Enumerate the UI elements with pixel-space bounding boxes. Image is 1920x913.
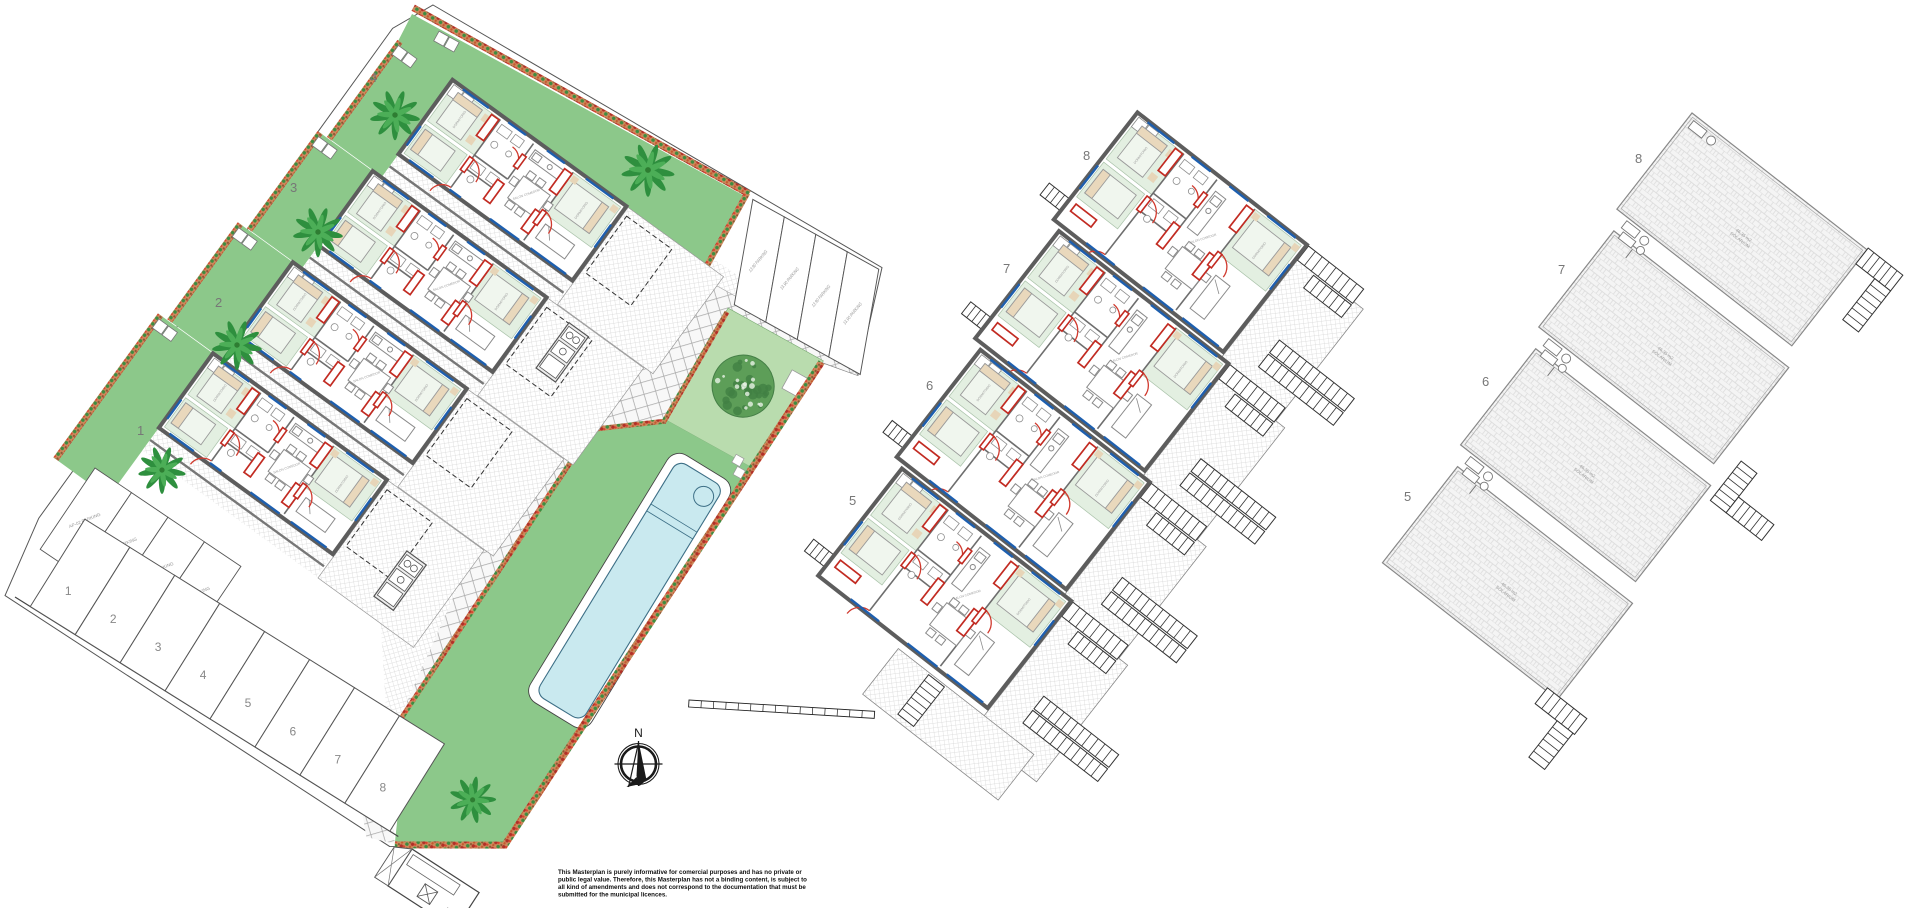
svg-text:5: 5 <box>1404 489 1411 504</box>
svg-text:6: 6 <box>926 378 933 393</box>
svg-text:1: 1 <box>65 584 72 598</box>
svg-text:6: 6 <box>290 724 297 738</box>
svg-text:5: 5 <box>849 493 856 508</box>
svg-text:N: N <box>634 726 643 740</box>
svg-text:6: 6 <box>1482 374 1489 389</box>
svg-text:8: 8 <box>1635 151 1642 166</box>
svg-text:7: 7 <box>1558 262 1565 277</box>
svg-text:8: 8 <box>379 781 386 795</box>
svg-text:4: 4 <box>370 70 377 85</box>
svg-text:3: 3 <box>155 640 162 654</box>
svg-text:7: 7 <box>335 752 342 766</box>
svg-text:all kind of amendments and doe: all kind of amendments and does not corr… <box>558 884 806 891</box>
svg-text:7: 7 <box>1003 261 1010 276</box>
svg-text:2: 2 <box>110 612 117 626</box>
svg-text:4: 4 <box>200 668 207 682</box>
svg-text:1: 1 <box>137 423 144 438</box>
svg-text:2: 2 <box>215 295 222 310</box>
svg-text:submitted for the municipal li: submitted for the municipal licences. <box>558 892 667 899</box>
svg-text:3: 3 <box>290 180 297 195</box>
svg-text:This Masterplan is purely info: This Masterplan is purely informative fo… <box>558 869 802 876</box>
svg-text:8: 8 <box>1083 148 1090 163</box>
svg-text:5: 5 <box>245 696 252 710</box>
svg-text:public legal value. Therefore,: public legal value. Therefore, this Mast… <box>558 877 807 884</box>
